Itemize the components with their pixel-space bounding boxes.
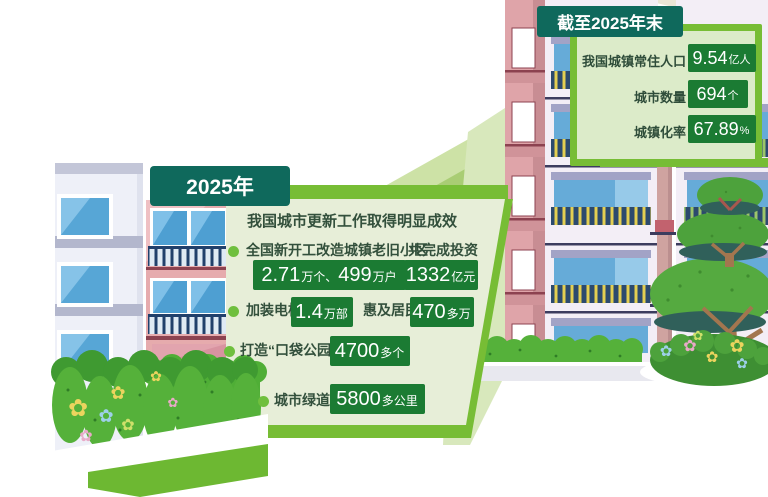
bullet-dot-icon	[228, 306, 239, 317]
summary-row2-value-box: 694个	[688, 80, 748, 108]
flower-icon: ✿	[98, 406, 113, 427]
flower-icon: ✿	[110, 383, 125, 404]
row4-label: 城市绿道	[274, 390, 330, 410]
pink-building-illustration	[146, 200, 230, 365]
summary-row1-label: 我国城镇常住人口	[582, 51, 686, 70]
main-panel-header-text: 2025年	[186, 171, 254, 201]
flower-icon: ✿	[660, 342, 673, 360]
row2-value2-box: 470多万	[410, 297, 474, 327]
summary-row3-value-box: 67.89%	[688, 115, 756, 143]
summary-row1-value-box: 9.54亿人	[688, 44, 756, 72]
green-strip-center	[288, 185, 508, 199]
summary-panel-header-text: 截至2025年末	[557, 9, 663, 34]
flower-icon: ✿	[706, 348, 719, 366]
row1-label: 全国新开工改造城镇老旧小区	[246, 240, 428, 260]
flower-icon: ✿	[79, 426, 92, 445]
summary-row3-label: 城镇化率	[634, 122, 686, 141]
summary-panel-header-badge: 截至2025年末	[537, 6, 683, 37]
flower-icon: ✿	[150, 369, 162, 385]
row1-value-box: 2.71万个、499万户	[253, 260, 406, 290]
bullet-dot-icon	[228, 246, 239, 257]
flower-icon: ✿	[68, 394, 88, 422]
row2-value-box: 1.4万部	[291, 297, 353, 327]
infographic-scene: ✿ ✿ ✿ ✿ ✿ ✿	[0, 0, 768, 497]
flower-icon: ✿	[693, 329, 704, 344]
flower-icon: ✿	[168, 396, 179, 411]
main-panel-header-badge: 2025年	[150, 166, 290, 206]
flower-icon: ✿	[121, 415, 134, 434]
tall-pink-building-illustration	[505, 0, 545, 366]
row4-value-box: 5800多公里	[330, 384, 425, 414]
row3-label: 打造“口袋公园”	[240, 340, 338, 360]
row3-value-box: 4700多个	[330, 336, 410, 366]
row1-value2-box: 1332亿元	[404, 260, 478, 290]
summary-row2-label: 城市数量	[634, 87, 686, 106]
bullet-dot-icon	[258, 396, 269, 407]
row1-label2: 共完成投资	[408, 240, 478, 260]
bullet-dot-icon	[224, 346, 235, 357]
flower-icon: ✿	[729, 336, 744, 357]
flower-icon: ✿	[736, 356, 748, 372]
main-panel-title: 我国城市更新工作取得明显成效	[247, 210, 457, 231]
